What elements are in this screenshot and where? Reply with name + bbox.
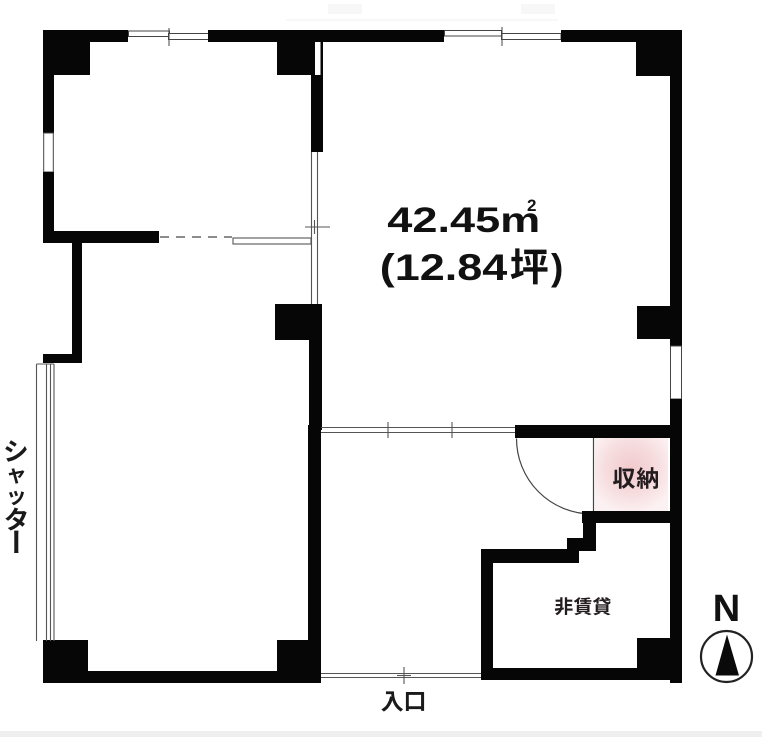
svg-text:): ) bbox=[551, 247, 563, 288]
svg-text:N: N bbox=[713, 588, 740, 630]
svg-text:(12.84: (12.84 bbox=[380, 247, 508, 288]
svg-text:42.45m: 42.45m bbox=[387, 200, 540, 240]
svg-text:2: 2 bbox=[527, 196, 536, 215]
